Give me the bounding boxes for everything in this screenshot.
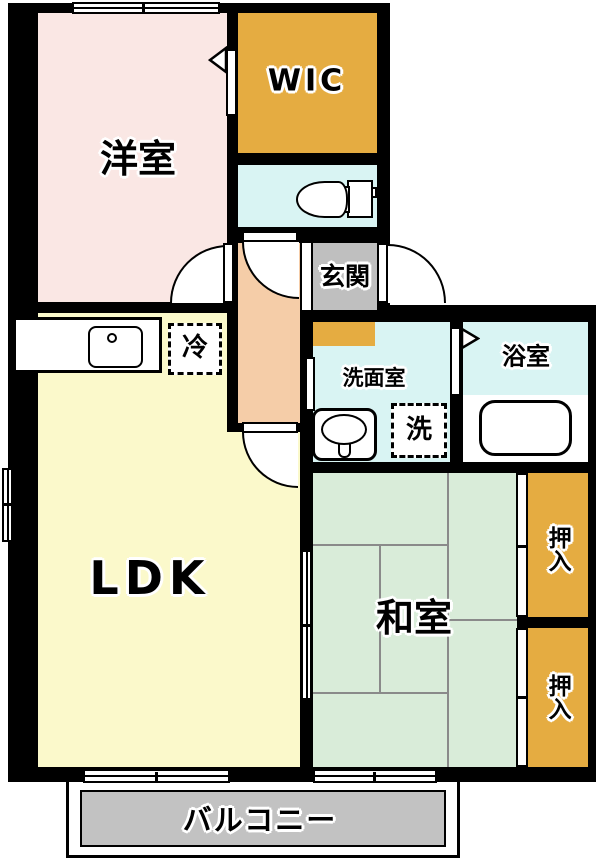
entrance-threshold (300, 243, 313, 310)
washbasin-bowl-icon (321, 414, 367, 445)
label-ldk: LDK (89, 554, 210, 602)
bathroom-folding-door (450, 327, 461, 396)
label-entrance: 玄関 (320, 264, 370, 290)
tatami-seam (447, 619, 517, 621)
closet-upper-sliding-door (516, 473, 528, 617)
label-balcony: バルコニー (183, 805, 337, 835)
label-bathroom: 浴室 (502, 344, 550, 369)
door-handle (518, 545, 527, 548)
label-closet-upper: 押入 (545, 526, 569, 572)
wic-door (226, 49, 237, 116)
tatami-seam (313, 544, 449, 546)
label-western-room: 洋室 (100, 140, 176, 180)
window-latch (4, 503, 13, 506)
front-door-leaf (377, 243, 388, 303)
wic-door-arrow-icon (208, 46, 227, 74)
ldk-japanese-sliding-door (301, 550, 312, 700)
label-wic: WIC (268, 65, 346, 97)
toilet-door-leaf (242, 231, 298, 242)
kitchen-sink-icon (88, 326, 143, 368)
toilet-bowl-icon (296, 181, 348, 218)
washer-space: 洗 (391, 403, 447, 458)
door-handle (518, 696, 527, 699)
window-sash-line (74, 7, 218, 9)
washroom-door (305, 357, 315, 411)
west-room-door-leaf (223, 243, 234, 303)
floor-plan: 冷 洗 (0, 0, 600, 867)
door-handle (303, 624, 312, 627)
window-latch (142, 4, 145, 13)
room-ldk (38, 313, 227, 767)
toilet-tank-icon (347, 180, 373, 218)
label-washroom: 洗面室 (343, 367, 406, 389)
front-door-swing (388, 244, 446, 303)
closet-lower-sliding-door (516, 628, 528, 767)
kitchen-faucet-icon (107, 333, 117, 343)
entrance-step (313, 322, 375, 346)
window-west-room-top (72, 2, 220, 14)
window-japanese-balcony (313, 769, 437, 783)
window-latch (373, 772, 376, 781)
fridge-space: 冷 (168, 323, 222, 375)
window-ldk-balcony (83, 769, 230, 783)
ldk-door-leaf (242, 422, 298, 433)
fridge-label: 冷 (182, 335, 208, 362)
bathtub-icon (479, 400, 572, 456)
tatami-seam (313, 692, 449, 694)
bathroom-door-arrow-icon (461, 328, 480, 350)
label-japanese-room: 和室 (376, 599, 452, 639)
window-ldk-left (2, 468, 13, 542)
window-latch (155, 772, 158, 781)
washer-label: 洗 (406, 417, 432, 444)
label-closet-lower: 押入 (545, 674, 569, 720)
